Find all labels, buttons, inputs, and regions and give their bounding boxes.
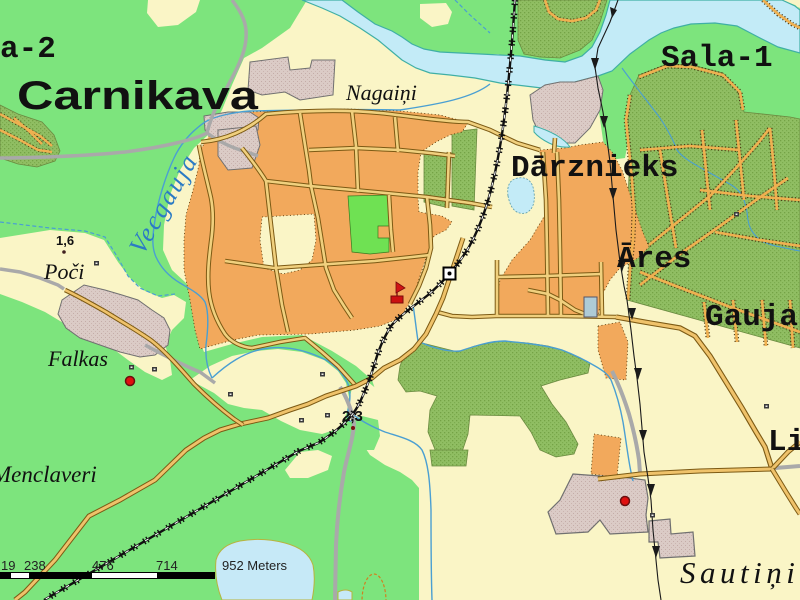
svg-text:Sautiņi: Sautiņi [680, 555, 799, 590]
svg-text:Carnikava: Carnikava [17, 73, 259, 118]
svg-text:2,3: 2,3 [342, 408, 363, 425]
svg-text:Sala-1: Sala-1 [661, 41, 773, 76]
svg-text:19: 19 [1, 558, 15, 573]
svg-text:Li: Li [768, 425, 800, 460]
svg-text:714: 714 [156, 558, 178, 573]
svg-text:1,6: 1,6 [56, 233, 74, 248]
svg-text:Falkas: Falkas [47, 346, 108, 371]
svg-text:952 Meters: 952 Meters [222, 558, 288, 573]
svg-text:238: 238 [24, 558, 46, 573]
svg-text:a-2: a-2 [0, 32, 56, 67]
svg-text:Menclaveri: Menclaveri [0, 462, 97, 487]
svg-text:Dārznieks: Dārznieks [511, 151, 678, 186]
svg-text:476: 476 [92, 558, 114, 573]
svg-text:Āres: Āres [617, 242, 691, 277]
svg-text:Gauja: Gauja [705, 300, 798, 335]
svg-text:Nagaiņi: Nagaiņi [345, 80, 417, 105]
svg-text:Poči: Poči [43, 259, 84, 284]
